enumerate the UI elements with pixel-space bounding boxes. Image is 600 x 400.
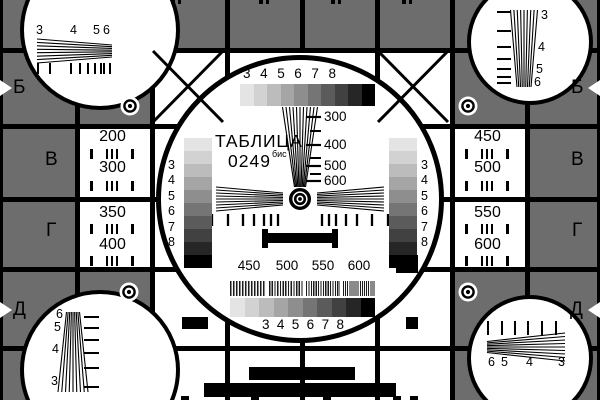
corner-number: 5: [501, 356, 508, 369]
edge-digit-stub: [266, 0, 269, 4]
grayscale-step: [303, 298, 318, 317]
grayscale-step: [348, 84, 362, 106]
edge-digit-stub: [409, 0, 412, 4]
tick-bar: [116, 224, 119, 234]
corner-number: 5: [93, 24, 100, 37]
scale-number: 3: [243, 66, 251, 81]
tick-bar: [111, 181, 114, 191]
tick-bar: [131, 181, 134, 191]
edge-digit-stub: [259, 0, 263, 4]
geometry-mark: [406, 317, 418, 329]
scale-number: 3: [262, 317, 270, 332]
row-letter-b-right: Б: [571, 78, 583, 98]
grayscale-step: [184, 216, 212, 229]
card-title: ТАБЛИЦА: [215, 131, 303, 152]
res-ticks: [90, 224, 134, 234]
scale-number: 3: [421, 158, 435, 172]
corner-number: 3: [51, 375, 58, 388]
freq-label-500: 500: [269, 259, 305, 273]
grayscale-step: [346, 298, 361, 317]
tick-bar: [90, 181, 93, 191]
grayscale-step: [281, 84, 295, 106]
burst-band-600: [343, 281, 375, 296]
scale-number: 8: [161, 235, 175, 249]
scale-number: 7: [161, 220, 175, 234]
edge-triangle-icon: [0, 80, 12, 96]
res-label-550: 550: [450, 205, 525, 221]
tick-bar: [465, 224, 468, 234]
wedge-overlay: [0, 0, 600, 400]
scale-number: 4: [277, 317, 285, 332]
grayscale-step: [184, 177, 212, 190]
edge-digit-stub: [178, 0, 181, 4]
edge-digit-stub: [171, 0, 175, 4]
row-letter-d-right: Д: [570, 300, 583, 320]
corner-number: 4: [52, 343, 59, 356]
top-scale-numbers: 345678: [243, 65, 336, 82]
res-label-400: 400: [75, 237, 150, 253]
freq-label-450: 450: [231, 259, 267, 273]
edge-triangle-icon: [588, 302, 600, 318]
grayscale-step: [245, 298, 260, 317]
grayscale-step: [389, 242, 417, 255]
tick-bar: [90, 256, 93, 266]
center-bar-cap: [332, 229, 338, 248]
grayscale-strip-left: [184, 138, 212, 268]
corner-number: 3: [558, 356, 565, 369]
grayscale-strip-right: [389, 138, 417, 268]
edge-digit-stub: [338, 0, 341, 4]
grayscale-strip-bottom: [230, 298, 375, 317]
bottom-scale-numbers: 345678: [262, 317, 344, 332]
tick-bar: [486, 149, 489, 159]
grayscale-step: [184, 164, 212, 177]
tick-bar: [465, 256, 468, 266]
tick-bar: [481, 256, 484, 266]
grayscale-step: [308, 84, 322, 106]
edge-digit-stub: [251, 396, 259, 400]
row-letter-g-left: Г: [46, 221, 56, 241]
grayscale-step: [240, 84, 254, 106]
tick-bar: [106, 149, 109, 159]
grayscale-step: [389, 190, 417, 203]
grayscale-step: [332, 298, 347, 317]
scale-number: 5: [277, 66, 285, 81]
tick-bar: [491, 149, 494, 159]
grayscale-step: [184, 190, 212, 203]
grayscale-step: [389, 138, 417, 151]
grayscale-step: [317, 298, 332, 317]
res-ticks: [465, 149, 509, 159]
grayscale-strip-top: [240, 84, 375, 106]
scale-number: 4: [421, 173, 435, 187]
res-ticks: [90, 256, 134, 266]
res-label-500: 500: [450, 160, 525, 176]
tick-bar: [111, 256, 114, 266]
res-ticks: [465, 256, 509, 266]
tick-bar: [491, 224, 494, 234]
burst-band-450: [230, 281, 266, 296]
edge-digit-stub: [393, 396, 401, 400]
scale-number: 5: [292, 317, 300, 332]
freq-label-550: 550: [305, 259, 341, 273]
grayscale-step: [274, 298, 289, 317]
tick-bar: [111, 149, 114, 159]
wedge-mark-300: 300: [324, 110, 347, 124]
res-label-600: 600: [450, 237, 525, 253]
tick-bar: [465, 181, 468, 191]
tick-bar: [116, 149, 119, 159]
tick-bar: [486, 181, 489, 191]
corner-number: 3: [541, 9, 548, 22]
freq-label-600: 600: [341, 259, 377, 273]
burst-band-550: [306, 281, 340, 296]
res-ticks: [90, 149, 134, 159]
tick-bar: [506, 181, 509, 191]
grayscale-step: [389, 203, 417, 216]
grayscale-step: [259, 298, 274, 317]
burst-band-500: [269, 281, 303, 296]
grayscale-step: [389, 229, 417, 242]
card-number-suffix: бис: [272, 149, 287, 159]
tick-bar: [465, 149, 468, 159]
scale-number: 6: [421, 204, 435, 218]
tick-bar: [481, 181, 484, 191]
res-ticks: [465, 224, 509, 234]
row-letter-v-left: В: [45, 150, 58, 170]
corner-number: 6: [103, 24, 110, 37]
edge-digit-stub: [181, 396, 189, 400]
row-letter-b-left: Б: [13, 78, 25, 98]
wedge-mark-400: 400: [324, 138, 347, 152]
scale-number: 3: [161, 158, 175, 172]
tick-bar: [106, 181, 109, 191]
grayscale-step: [335, 84, 349, 106]
scale-number: 7: [421, 220, 435, 234]
geometry-mark: [396, 255, 418, 273]
corner-number: 4: [526, 356, 533, 369]
tick-bar: [111, 224, 114, 234]
tick-bar: [106, 256, 109, 266]
grayscale-step: [389, 164, 417, 177]
scale-number: 7: [322, 317, 330, 332]
tick-bar: [506, 224, 509, 234]
grayscale-step: [362, 84, 376, 106]
edge-digit-stub: [410, 396, 418, 400]
res-label-200: 200: [75, 129, 150, 145]
scale-number: 5: [161, 189, 175, 203]
edge-triangle-icon: [588, 80, 600, 96]
corner-number: 4: [538, 41, 545, 54]
tick-bar: [481, 224, 484, 234]
tick-bar: [131, 224, 134, 234]
scale-number: 6: [161, 204, 175, 218]
grayscale-step: [389, 151, 417, 164]
corner-number: 5: [54, 321, 61, 334]
grayscale-step: [184, 255, 212, 268]
scale-number: 8: [336, 317, 344, 332]
edge-triangle-icon: [0, 302, 12, 318]
tick-bar: [486, 224, 489, 234]
row-letter-d-left: Д: [13, 300, 26, 320]
tick-bar: [506, 149, 509, 159]
grayscale-step: [184, 138, 212, 151]
tick-bar: [491, 181, 494, 191]
res-label-350: 350: [75, 205, 150, 221]
grayscale-step: [184, 203, 212, 216]
grayscale-step: [254, 84, 268, 106]
corner-number: 4: [70, 24, 77, 37]
bottom-reference-bar: [249, 367, 355, 380]
tick-bar: [506, 256, 509, 266]
tick-bar: [90, 149, 93, 159]
edge-digit-stub: [331, 0, 335, 4]
wedge-mark-500: 500: [324, 159, 347, 173]
wedge-mark-600: 600: [324, 174, 347, 188]
grayscale-step: [389, 177, 417, 190]
corner-number: 6: [488, 356, 495, 369]
scale-number: 5: [421, 189, 435, 203]
geometry-mark: [182, 317, 208, 329]
right-strip-numbers: 345678: [421, 158, 435, 249]
tick-bar: [491, 256, 494, 266]
tick-bar: [481, 149, 484, 159]
scale-number: 4: [260, 66, 268, 81]
grayscale-step: [267, 84, 281, 106]
grayscale-step: [389, 216, 417, 229]
res-label-450: 450: [450, 129, 525, 145]
left-strip-numbers: 345678: [161, 158, 175, 249]
grayscale-step: [361, 298, 376, 317]
edge-digit-stub: [402, 0, 406, 4]
grayscale-step: [184, 242, 212, 255]
corner-number: 3: [36, 24, 43, 37]
scale-number: 4: [161, 173, 175, 187]
bottom-reference-bar: [204, 383, 396, 397]
tick-bar: [116, 256, 119, 266]
scale-number: 6: [294, 66, 302, 81]
scale-number: 8: [421, 235, 435, 249]
grayscale-step: [294, 84, 308, 106]
tick-bar: [131, 256, 134, 266]
grayscale-step: [321, 84, 335, 106]
center-bar: [262, 233, 338, 243]
scale-number: 7: [311, 66, 319, 81]
tick-bar: [106, 224, 109, 234]
res-ticks: [465, 181, 509, 191]
scale-number: 6: [307, 317, 315, 332]
card-number: 0249: [228, 151, 271, 172]
res-label-300: 300: [75, 160, 150, 176]
grayscale-step: [184, 151, 212, 164]
grayscale-step: [288, 298, 303, 317]
grayscale-step: [184, 229, 212, 242]
tick-bar: [486, 256, 489, 266]
scale-number: 8: [328, 66, 336, 81]
row-letter-g-right: Г: [572, 221, 582, 241]
edge-digit-stub: [323, 396, 331, 400]
row-letter-v-right: В: [571, 150, 584, 170]
grayscale-step: [230, 298, 245, 317]
tick-bar: [90, 224, 93, 234]
corner-number: 6: [534, 76, 541, 89]
tick-bar: [116, 181, 119, 191]
tick-bar: [131, 149, 134, 159]
res-ticks: [90, 181, 134, 191]
tv-test-card: 345678 345678 345678 345678 300 400 500 …: [0, 0, 600, 400]
